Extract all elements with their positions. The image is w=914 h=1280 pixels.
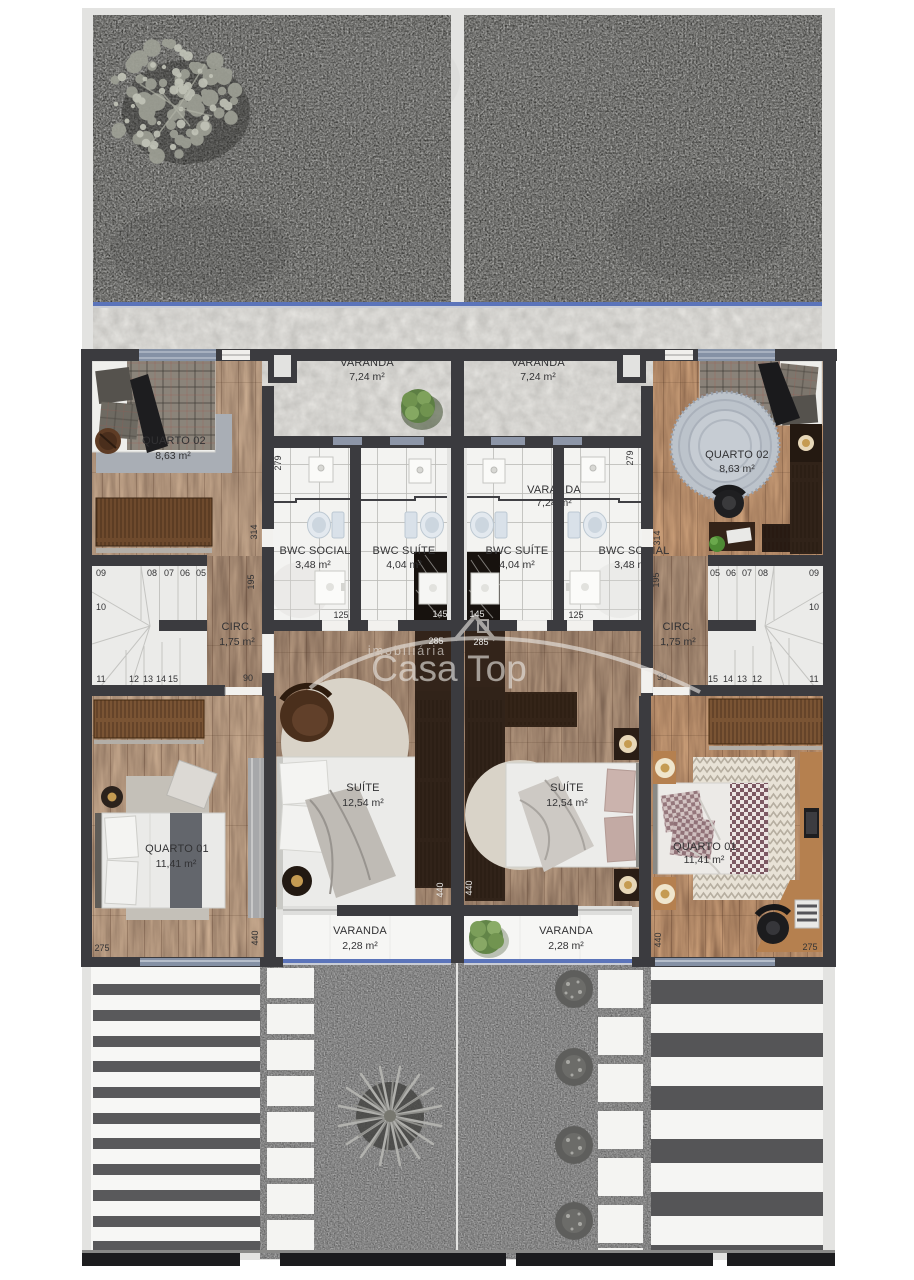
svg-text:CIRC.: CIRC. — [222, 621, 253, 633]
svg-text:BWC SUÍTE: BWC SUÍTE — [486, 544, 549, 557]
svg-text:12: 12 — [752, 674, 762, 684]
svg-text:06: 06 — [726, 568, 736, 578]
svg-text:05: 05 — [196, 568, 206, 578]
svg-text:11: 11 — [96, 674, 105, 684]
svg-text:06: 06 — [180, 568, 190, 578]
svg-text:440: 440 — [250, 930, 260, 945]
svg-text:195: 195 — [246, 574, 256, 589]
svg-text:SUÍTE: SUÍTE — [550, 781, 583, 794]
svg-text:QUARTO 02: QUARTO 02 — [142, 435, 206, 447]
svg-text:09: 09 — [809, 568, 819, 578]
svg-text:05: 05 — [710, 568, 720, 578]
svg-text:13: 13 — [143, 674, 153, 684]
svg-text:145: 145 — [432, 609, 447, 619]
svg-text:3,48 m²: 3,48 m² — [295, 559, 331, 571]
svg-text:314: 314 — [249, 524, 259, 539]
svg-text:CIRC.: CIRC. — [663, 621, 694, 633]
svg-text:13: 13 — [737, 674, 747, 684]
svg-text:279: 279 — [625, 450, 635, 465]
svg-text:125: 125 — [568, 610, 583, 620]
svg-text:1,75 m²: 1,75 m² — [660, 636, 696, 648]
svg-text:07: 07 — [164, 568, 174, 578]
svg-text:VARANDA: VARANDA — [539, 925, 593, 937]
svg-text:90: 90 — [243, 673, 253, 683]
svg-text:14: 14 — [156, 674, 166, 684]
svg-text:07: 07 — [742, 568, 752, 578]
svg-text:4,04 m²: 4,04 m² — [499, 559, 535, 571]
svg-text:10: 10 — [96, 602, 106, 612]
svg-text:11,41 m²: 11,41 m² — [156, 858, 197, 870]
svg-text:12,54 m²: 12,54 m² — [342, 797, 384, 809]
svg-text:10: 10 — [809, 602, 819, 612]
svg-text:15: 15 — [168, 674, 178, 684]
svg-text:314: 314 — [652, 530, 662, 545]
svg-text:QUARTO 02: QUARTO 02 — [705, 449, 769, 461]
svg-text:275: 275 — [94, 943, 109, 953]
svg-text:Casa Top: Casa Top — [371, 648, 527, 689]
svg-text:7,24 m²: 7,24 m² — [520, 371, 556, 383]
svg-text:QUARTO 01: QUARTO 01 — [673, 841, 737, 853]
svg-text:2,28 m²: 2,28 m² — [342, 940, 378, 952]
svg-text:440: 440 — [464, 880, 474, 895]
svg-text:12: 12 — [129, 674, 139, 684]
svg-text:8,63 m²: 8,63 m² — [155, 450, 191, 462]
svg-text:09: 09 — [96, 568, 106, 578]
svg-text:SUÍTE: SUÍTE — [346, 781, 379, 794]
svg-text:08: 08 — [758, 568, 768, 578]
svg-text:8,63 m²: 8,63 m² — [719, 463, 755, 475]
svg-text:275: 275 — [802, 942, 817, 952]
svg-text:440: 440 — [435, 882, 445, 897]
svg-text:2,28 m²: 2,28 m² — [548, 940, 584, 952]
svg-text:440: 440 — [653, 932, 663, 947]
svg-text:08: 08 — [147, 568, 157, 578]
svg-text:VARANDA: VARANDA — [333, 925, 387, 937]
svg-text:BWC SUÍTE: BWC SUÍTE — [373, 544, 436, 557]
svg-text:12,54 m²: 12,54 m² — [546, 797, 588, 809]
svg-text:BWC SOCIAL: BWC SOCIAL — [598, 545, 669, 557]
svg-text:BWC SOCIAL: BWC SOCIAL — [279, 545, 350, 557]
svg-text:7,24 m²: 7,24 m² — [349, 371, 385, 383]
svg-text:1,75 m²: 1,75 m² — [219, 636, 255, 648]
svg-text:QUARTO 01: QUARTO 01 — [145, 843, 209, 855]
svg-text:14: 14 — [723, 674, 733, 684]
svg-text:4,04 m²: 4,04 m² — [386, 559, 422, 571]
svg-text:15: 15 — [708, 674, 718, 684]
svg-text:125: 125 — [333, 610, 348, 620]
svg-text:279: 279 — [273, 455, 283, 470]
svg-text:11: 11 — [809, 674, 818, 684]
svg-text:11,41 m²: 11,41 m² — [684, 854, 725, 866]
